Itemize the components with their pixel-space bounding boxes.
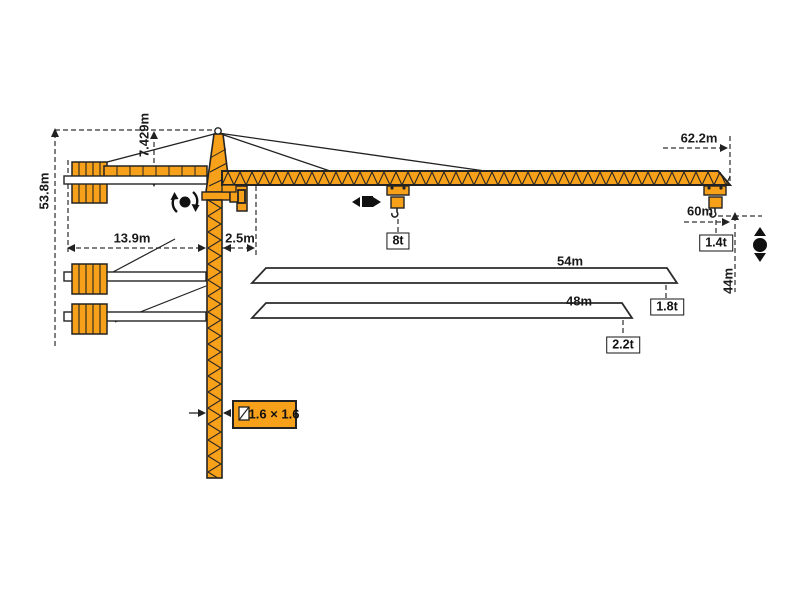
slewing-icon [171,192,200,212]
tower-apex-pin [215,128,221,134]
mast [207,200,222,478]
dim-total-height: 53.8m [37,173,52,210]
hook-mid [392,208,398,217]
capacity-tip-54m: 1.8t [650,299,684,316]
dim-hook-clearance: 44m [721,268,736,294]
capacity-tip-62m: 1.4t [699,235,733,252]
dim-counter-jib: 13.9m [114,231,151,246]
trolley-travel-icon [352,196,381,207]
trolley-hook-mid [387,186,409,217]
dim-max-radius: 62.2m [681,131,718,146]
jib-root [222,185,236,192]
counterweight-variant-48 [64,304,206,334]
mast-section-size: 1.6 × 1.6 [249,407,300,422]
counterweight-variant-54 [64,264,206,294]
mast-cross-section-icon [239,407,249,420]
counter-jib-tie-bar [64,176,207,184]
jib [222,171,730,192]
jib-outline-54m [252,268,677,283]
crane-diagram: 53.8m 7.429m 13.9m 2.5m 62.2m 60m 44m 54… [0,0,800,600]
slewing-platform [202,192,230,200]
capacity-max-load: 8t [386,233,409,250]
dim-head-height: 7.429m [137,113,152,157]
dim-jib-54: 54m [557,254,583,269]
dim-jib-48: 48m [566,294,592,309]
capacity-tip-48m: 2.2t [606,337,640,354]
hoist-icon [753,227,767,262]
dim-radius-60: 60m [687,204,713,219]
dim-root-offset: 2.5m [225,231,255,246]
